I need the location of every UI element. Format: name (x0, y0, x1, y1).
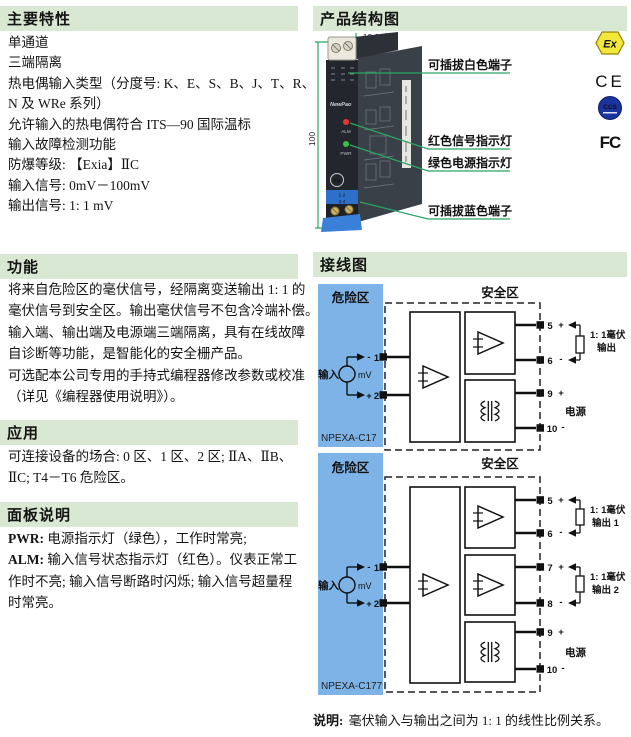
output1-label-line1: 1: 1毫伏 (590, 504, 626, 516)
terminal-pad (537, 321, 545, 329)
power-stage-box (465, 622, 515, 682)
text-line: 输出信号: 1: 1 mV (8, 196, 315, 216)
terminal-sign: - (561, 422, 564, 433)
blue-terminal-block: 1 2 3 4 (321, 190, 362, 232)
terminal-sign: + (558, 320, 564, 331)
terminal-sign: + (366, 391, 372, 402)
text-line: 三端隔离 (8, 53, 315, 73)
section-header-panel: 面板说明 (0, 502, 298, 527)
terminal-pad (380, 391, 388, 399)
section-header-application: 应用 (0, 420, 298, 445)
text-line: 允许输入的热电偶符合 ITS—90 国际温标 (8, 115, 315, 135)
hazard-zone (318, 453, 383, 695)
product-structure-figure: 12.8 100 (310, 32, 631, 248)
terminal-sign: - (367, 562, 370, 573)
terminal-sign: - (561, 663, 564, 674)
safe-zone-boundary (385, 477, 540, 692)
arrow-icon (568, 321, 576, 329)
terminal-pad (537, 389, 545, 397)
load-resistor-2 (576, 567, 584, 603)
section-header-wiring: 接线图 (313, 252, 627, 277)
input-wires (387, 567, 410, 603)
terminal-number: 8 (547, 599, 552, 610)
section-header-structure: 产品结构图 (313, 6, 627, 31)
side-label-strip (402, 80, 411, 168)
height-dimension: 100 (307, 132, 317, 146)
alarm-led-icon (343, 119, 349, 125)
arrow-icon (568, 356, 576, 364)
brand-text: NewPao (330, 102, 352, 108)
input-unit: mV (358, 581, 372, 591)
terminal-pad (537, 665, 545, 673)
terminal-pad (537, 628, 545, 636)
terminal-number: 2 (374, 391, 379, 402)
ccs-mark-text: CCS (603, 104, 617, 111)
section-title: 主要特性 (7, 8, 71, 29)
load-resistor (576, 325, 584, 360)
input-wires (387, 357, 410, 395)
ex-circle-label: Ex (334, 179, 342, 185)
certification-marks: Ex CE CCS FC (595, 32, 625, 152)
blue-terminal-label: 可插拔蓝色端子 (428, 203, 512, 218)
terminal-sign: + (558, 562, 564, 573)
section-title: 产品结构图 (320, 8, 400, 29)
input-unit: mV (358, 370, 372, 380)
terminal-pad (380, 599, 388, 607)
text-line: 防爆等级: 【Exia】ⅡC (8, 155, 315, 175)
power-label: 电源 (565, 405, 586, 418)
terminal-pad (537, 599, 545, 607)
text-line: 作时不亮; 输入信号断路时闪烁; 输入信号超量程 (8, 571, 297, 592)
text-line: 输入端、输出端及电源端三端隔离，具有在线故障 (8, 322, 319, 343)
atex-ex-text: Ex (603, 39, 617, 51)
terminal-number: 10 (547, 665, 558, 676)
output-label-line1: 1: 1毫伏 (590, 329, 626, 341)
power-stage-box (465, 380, 515, 442)
terminal-sign: + (558, 388, 564, 399)
terminal-sign: + (558, 627, 564, 638)
terminal-sign: + (558, 495, 564, 506)
text-line: ALM: 输入信号状态指示灯（红色）。仪表正常工 (8, 549, 297, 570)
input-label: 输入 (318, 368, 339, 381)
output2-label-line2: 输出 2 (592, 584, 619, 596)
hazard-zone-label: 危险区 (331, 290, 370, 305)
note-label: 说明: (313, 713, 343, 728)
datasheet-page: 主要特性 单通道三端隔离热电偶输入类型（分度号: K、E、S、B、J、T、R、N… (0, 0, 631, 737)
safe-zone-label: 安全区 (481, 456, 519, 471)
load-resistor-1 (576, 500, 584, 533)
text-line: 输入信号: 0mV－100mV (8, 176, 315, 196)
section-header-main-features: 主要特性 (0, 6, 298, 31)
wiring-note: 说明: 毫伏输入与输出之间为 1: 1 的线性比例关系。 (313, 710, 609, 729)
terminal-pad (380, 563, 388, 571)
application-text: 可连接设备的场合: 0 区、1 区、2 区; ⅡA、ⅡB、ⅡC; T4－T6 危… (8, 446, 292, 489)
terminal-pad (537, 563, 545, 571)
output-wires (515, 500, 536, 669)
red-led-label: 红色信号指示灯 (428, 133, 512, 148)
text-line: 热电偶输入类型（分度号: K、E、S、B、J、T、R、 (8, 74, 315, 94)
output1-label-line2: 输出 1 (592, 517, 620, 529)
terminal-sign: + (366, 599, 372, 610)
section-title: 面板说明 (7, 504, 71, 525)
terminal-sign: - (559, 354, 562, 365)
hazard-zone-label: 危险区 (331, 460, 370, 475)
terminal-number: 2 (374, 599, 379, 610)
input-label: 输入 (318, 579, 339, 592)
note-text: 毫伏输入与输出之间为 1: 1 的线性比例关系。 (345, 713, 609, 728)
output2-label-line1: 1: 1毫伏 (590, 571, 626, 583)
terminal-sign: - (559, 527, 562, 538)
terminal-number: 1 (374, 563, 380, 574)
terminal-pad (537, 496, 545, 504)
terminal-number: 9 (547, 389, 552, 400)
text-line: PWR: 电源指示灯（绿色），工作时常亮; (8, 528, 297, 549)
terminal-sign: - (367, 352, 370, 363)
terminal-pad (380, 353, 388, 361)
ccs-mark-detail (603, 112, 617, 114)
arrow-icon (568, 496, 576, 504)
arrow-icon (568, 599, 576, 607)
text-line: 单通道 (8, 33, 315, 53)
fcc-mark-icon: FC (600, 133, 621, 152)
terminal-number: 1 (374, 353, 380, 364)
wiring-diagram-npexa-c177: 危险区 NPEXA-C177 安全区 输入 mV - 1 + 2 (310, 452, 631, 704)
terminal-number: 9 (547, 628, 552, 639)
safe-zone-label: 安全区 (481, 285, 519, 300)
wiring-diagram-npexa-c17: 危险区 NPEXA-C17 安全区 输入 mV - 1 + 2 (310, 280, 631, 452)
terminal-number: 6 (547, 529, 552, 540)
terminal-pad (537, 356, 545, 364)
power-led-label: PWR (340, 151, 352, 157)
terminal-pad (537, 424, 545, 432)
section-title: 接线图 (320, 254, 368, 275)
ce-mark-icon: CE (595, 72, 625, 91)
terminal-pad (537, 529, 545, 537)
text-line: 将来自危险区的毫伏信号，经隔离变送输出 1: 1 的 (8, 279, 319, 300)
arrow-icon (568, 529, 576, 537)
text-line: N 及 WRe 系列） (8, 94, 315, 114)
function-text: 将来自危险区的毫伏信号，经隔离变送输出 1: 1 的毫伏信号到安全区。输出毫伏信… (8, 279, 319, 407)
main-features-list: 单通道三端隔离热电偶输入类型（分度号: K、E、S、B、J、T、R、N 及 WR… (8, 33, 315, 217)
power-label: 电源 (565, 646, 586, 659)
text-line: ⅡC; T4－T6 危险区。 (8, 467, 292, 488)
output-wires (515, 325, 536, 428)
power-led-icon (343, 141, 349, 147)
terminal-number: 5 (547, 496, 553, 507)
terminal-number: 10 (547, 424, 558, 435)
text-line: 毫伏信号到安全区。输出毫伏信号不包含冷端补偿。 (8, 300, 319, 321)
text-line: 自诊断等功能，是智能化的安全栅产品。 (8, 343, 319, 364)
output-label-line2: 输出 (597, 342, 616, 354)
model-label: NPEXA-C177 (321, 681, 383, 692)
terminal-number: 6 (547, 356, 552, 367)
terminal-number: 5 (547, 321, 553, 332)
white-terminal-block (328, 37, 356, 60)
text-line: 时常亮。 (8, 592, 297, 613)
alarm-led-label: ALM (341, 129, 351, 135)
terminal-row-1: 1 2 (339, 193, 346, 199)
text-line: 可连接设备的场合: 0 区、1 区、2 区; ⅡA、ⅡB、 (8, 446, 292, 467)
text-line: （详见《编程器使用说明》）。 (8, 386, 319, 407)
green-led-label: 绿色电源指示灯 (428, 155, 512, 170)
panel-text: PWR: 电源指示灯（绿色），工作时常亮;ALM: 输入信号状态指示灯（红色）。… (8, 528, 297, 614)
text-line: 可选配本公司专用的手持式编程器修改参数或校准 (8, 365, 319, 386)
section-header-function: 功能 (0, 254, 298, 279)
device-illustration: NewPao ALM PWR Ex 1 2 3 4 (321, 32, 422, 232)
terminal-number: 7 (547, 563, 552, 574)
text-line: 输入故障检测功能 (8, 135, 315, 155)
white-terminal-label: 可插拔白色端子 (428, 57, 512, 72)
section-title: 功能 (7, 256, 39, 277)
arrow-icon (568, 563, 576, 571)
section-title: 应用 (7, 422, 39, 443)
model-label: NPEXA-C17 (321, 433, 377, 444)
hazard-zone (318, 284, 383, 447)
terminal-sign: - (559, 597, 562, 608)
